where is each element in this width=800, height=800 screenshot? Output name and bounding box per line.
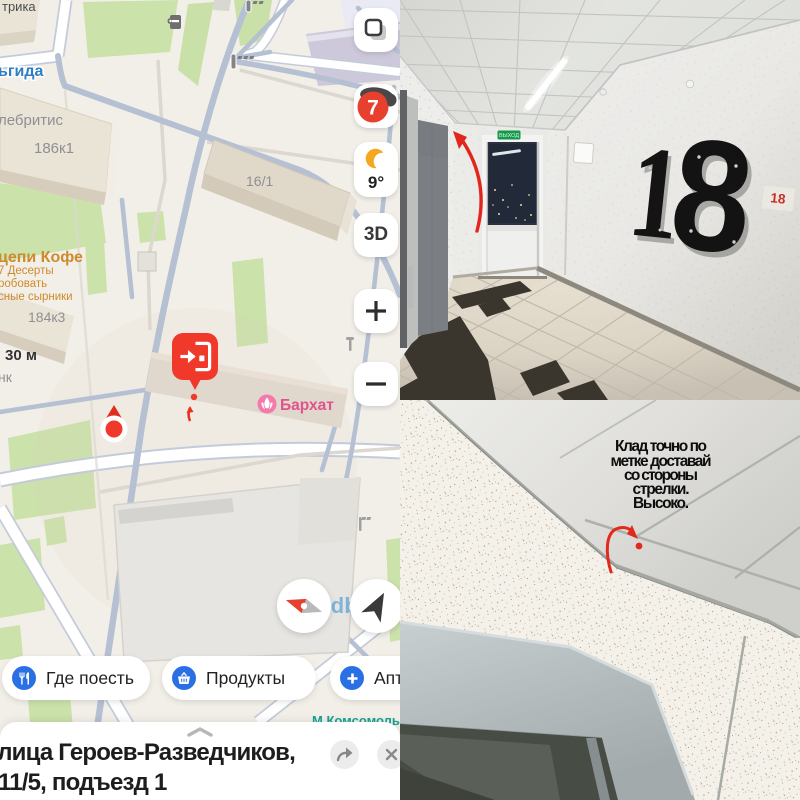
svg-text:ьгида: ьгида bbox=[0, 63, 43, 80]
svg-text:18: 18 bbox=[770, 190, 787, 207]
svg-text:нк: нк bbox=[0, 369, 13, 385]
svg-text:30 м: 30 м bbox=[5, 347, 37, 364]
svg-text:сные сырники: сные сырники bbox=[0, 291, 73, 303]
svg-text:184к3: 184к3 bbox=[28, 309, 65, 325]
svg-text:цепи Кофе: цепи Кофе bbox=[0, 249, 83, 266]
svg-text:186к1: 186к1 bbox=[34, 140, 74, 157]
svg-text:Высоко.: Высоко. bbox=[633, 495, 689, 512]
svg-text:16/1: 16/1 bbox=[246, 173, 273, 189]
svg-text:робовать: робовать bbox=[0, 278, 47, 290]
svg-text:7: 7 bbox=[367, 97, 379, 120]
svg-text:Бархат: Бархат bbox=[280, 397, 334, 414]
svg-text:трика: трика bbox=[2, 0, 36, 14]
svg-text:ВЫХОД: ВЫХОД bbox=[499, 133, 519, 139]
svg-text:лебритис: лебритис bbox=[0, 112, 63, 129]
svg-text:7 Десерты: 7 Десерты bbox=[0, 265, 54, 277]
